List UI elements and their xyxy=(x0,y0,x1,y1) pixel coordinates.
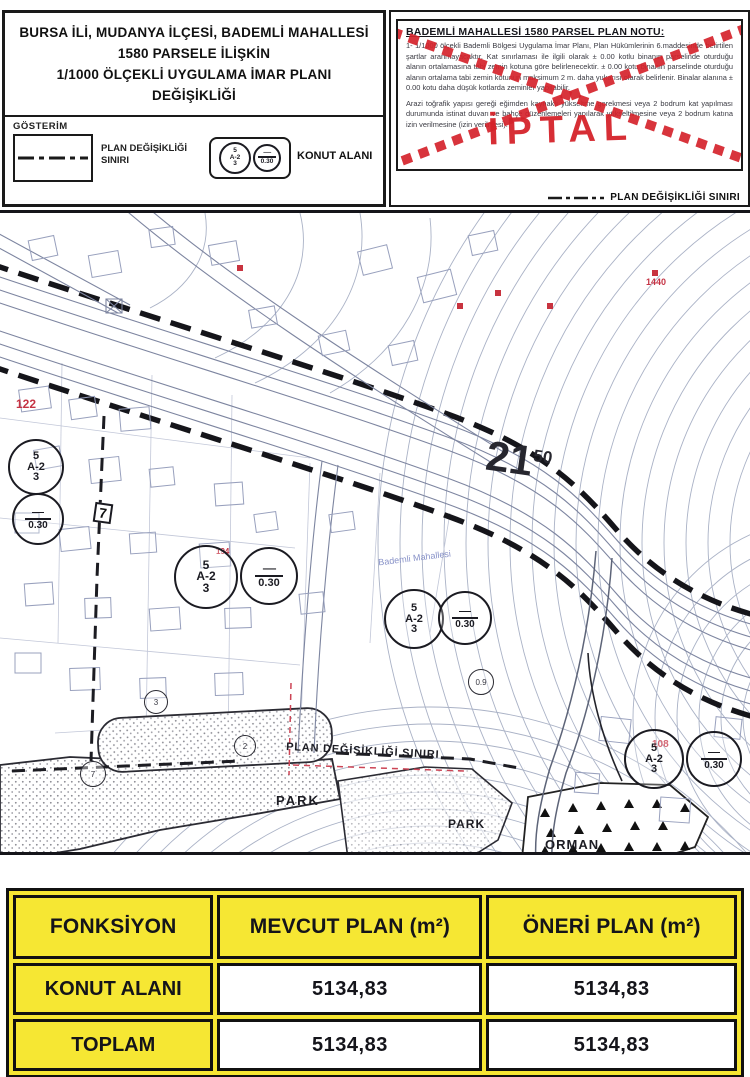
konut-oneri-value: 5134,83 xyxy=(486,963,737,1015)
ratio-circle-icon: —0.30 xyxy=(686,731,742,787)
red-mark xyxy=(495,290,501,296)
ratio-dash: — xyxy=(708,748,720,758)
ratio-dash: — xyxy=(263,150,271,157)
map-marker: 0.9 xyxy=(468,669,494,695)
ratio-dash: — xyxy=(262,564,275,575)
map-marker: 3 xyxy=(144,690,168,714)
table-row-toplam: TOPLAM 5134,83 5134,83 xyxy=(13,1019,737,1071)
road-number: 21 xyxy=(483,432,536,485)
street-number-box: 7 xyxy=(93,502,113,524)
header-fonksiyon: FONKSİYON xyxy=(13,895,213,959)
konut-mevcut-value: 5134,83 xyxy=(217,963,482,1015)
red-mark xyxy=(237,265,243,271)
ratio-value: 0.30 xyxy=(452,617,477,630)
ratio-circle-icon: — 0.30 xyxy=(253,144,281,172)
map-marker: 7 xyxy=(80,761,106,787)
map-marker: 2 xyxy=(234,735,256,757)
ratio-value: 0.30 xyxy=(25,518,50,531)
red-mark xyxy=(547,303,553,309)
zone-circle-icon: 5A-23 xyxy=(624,729,684,789)
plan-note-paragraph-1: 1- 1/1000 ölçekli Bademli Bölgesi Uygula… xyxy=(406,41,733,94)
plan-note-box: BADEMLİ MAHALLESİ 1580 PARSEL PLAN NOTU:… xyxy=(396,19,743,171)
iptal-stamp: İPTAL xyxy=(487,106,635,154)
title-line-1: BURSA İLİ, MUDANYA İLÇESİ, BADEMLİ MAHAL… xyxy=(11,23,377,44)
parcel-label-122: 122 xyxy=(16,397,36,411)
dash-dot-line-icon xyxy=(18,153,88,163)
boundary-legend-label: PLAN DEĞİŞİKLİĞİ SINIRI xyxy=(101,143,187,167)
road-number-label: 2150 xyxy=(483,435,554,486)
title-block: BURSA İLİ, MUDANYA İLÇESİ, BADEMLİ MAHAL… xyxy=(2,10,386,207)
ratio-value: 0.30 xyxy=(258,156,277,166)
table-header-row: FONKSİYON MEVCUT PLAN (m²) ÖNERİ PLAN (m… xyxy=(13,895,737,959)
plan-note-block: BADEMLİ MAHALLESİ 1580 PARSEL PLAN NOTU:… xyxy=(389,10,750,207)
ratio-circle-icon: —0.30 xyxy=(240,547,298,605)
row-label-konut: KONUT ALANI xyxy=(13,963,213,1015)
note-boundary-caption: PLAN DEĞİŞİKLİĞİ SINIRI xyxy=(548,192,740,203)
toplam-mevcut-value: 5134,83 xyxy=(217,1019,482,1071)
konut-legend-label: KONUT ALANI xyxy=(297,150,372,162)
park-label-1: PARK xyxy=(276,793,320,808)
red-mark xyxy=(457,303,463,309)
zone-circle-icon: 5A-23 xyxy=(8,439,64,495)
legend-heading: GÖSTERİM xyxy=(13,121,68,132)
red-mark xyxy=(652,270,658,276)
title-line-2: 1580 PARSELE İLİŞKİN xyxy=(11,44,377,65)
zone-height: 3 xyxy=(233,161,237,167)
ratio-dash: — xyxy=(32,508,44,518)
toplam-oneri-value: 5134,83 xyxy=(486,1019,737,1071)
ratio-value: 0.30 xyxy=(701,758,726,771)
parcel-label-1440: 1440 xyxy=(646,277,666,287)
row-label-toplam: TOPLAM xyxy=(13,1019,213,1071)
boundary-line-symbol xyxy=(13,134,93,182)
legend: GÖSTERİM PLAN DEĞİŞİKLİĞİ SINIRI 5 A-2 3… xyxy=(5,117,383,201)
ratio-circle-icon: —0.30 xyxy=(12,493,64,545)
area-comparison-table: FONKSİYON MEVCUT PLAN (m²) ÖNERİ PLAN (m… xyxy=(6,888,744,1077)
title-line-4: DEĞİŞİKLİĞİ xyxy=(11,86,377,107)
dash-dot-line-icon xyxy=(548,194,604,202)
plan-note-heading: BADEMLİ MAHALLESİ 1580 PARSEL PLAN NOTU: xyxy=(406,26,733,38)
ratio-dash: — xyxy=(459,607,471,617)
zone-height: 3 xyxy=(411,624,417,634)
zone-height: 3 xyxy=(33,472,39,482)
plan-title: BURSA İLİ, MUDANYA İLÇESİ, BADEMLİ MAHAL… xyxy=(5,13,383,115)
zone-height: 3 xyxy=(651,764,657,774)
table-row-konut: KONUT ALANI 5134,83 5134,83 xyxy=(13,963,737,1015)
zone-circle-icon: 5 A-2 3 xyxy=(219,142,251,174)
zone-circle-icon: 5A-23 xyxy=(384,589,444,649)
zone-circle-icon: 5A-23 xyxy=(174,545,238,609)
park-label-2: PARK xyxy=(448,817,485,831)
note-caption-text: PLAN DEĞİŞİKLİĞİ SINIRI xyxy=(610,192,740,203)
plan-sheet: BURSA İLİ, MUDANYA İLÇESİ, BADEMLİ MAHAL… xyxy=(0,0,750,1077)
boundary-label-line2: SINIRI xyxy=(101,155,187,167)
zone-height: 3 xyxy=(203,583,210,594)
orman-label: ORMAN xyxy=(545,837,599,852)
header-mevcut-plan: MEVCUT PLAN (m²) xyxy=(217,895,482,959)
title-line-3: 1/1000 ÖLÇEKLİ UYGULAMA İMAR PLANI xyxy=(11,65,377,86)
ratio-value: 0.30 xyxy=(255,575,282,589)
konut-zone-symbol: 5 A-2 3 — 0.30 xyxy=(209,137,291,179)
header-oneri-plan: ÖNERİ PLAN (m²) xyxy=(486,895,737,959)
road-number-sup: 50 xyxy=(532,446,553,467)
zoning-map: PLAN DEĞİŞİKLİĞİ SINIRI PARK PARK ORMAN … xyxy=(0,210,750,855)
boundary-label-line1: PLAN DEĞİŞİKLİĞİ xyxy=(101,143,187,155)
ratio-circle-icon: —0.30 xyxy=(438,591,492,645)
